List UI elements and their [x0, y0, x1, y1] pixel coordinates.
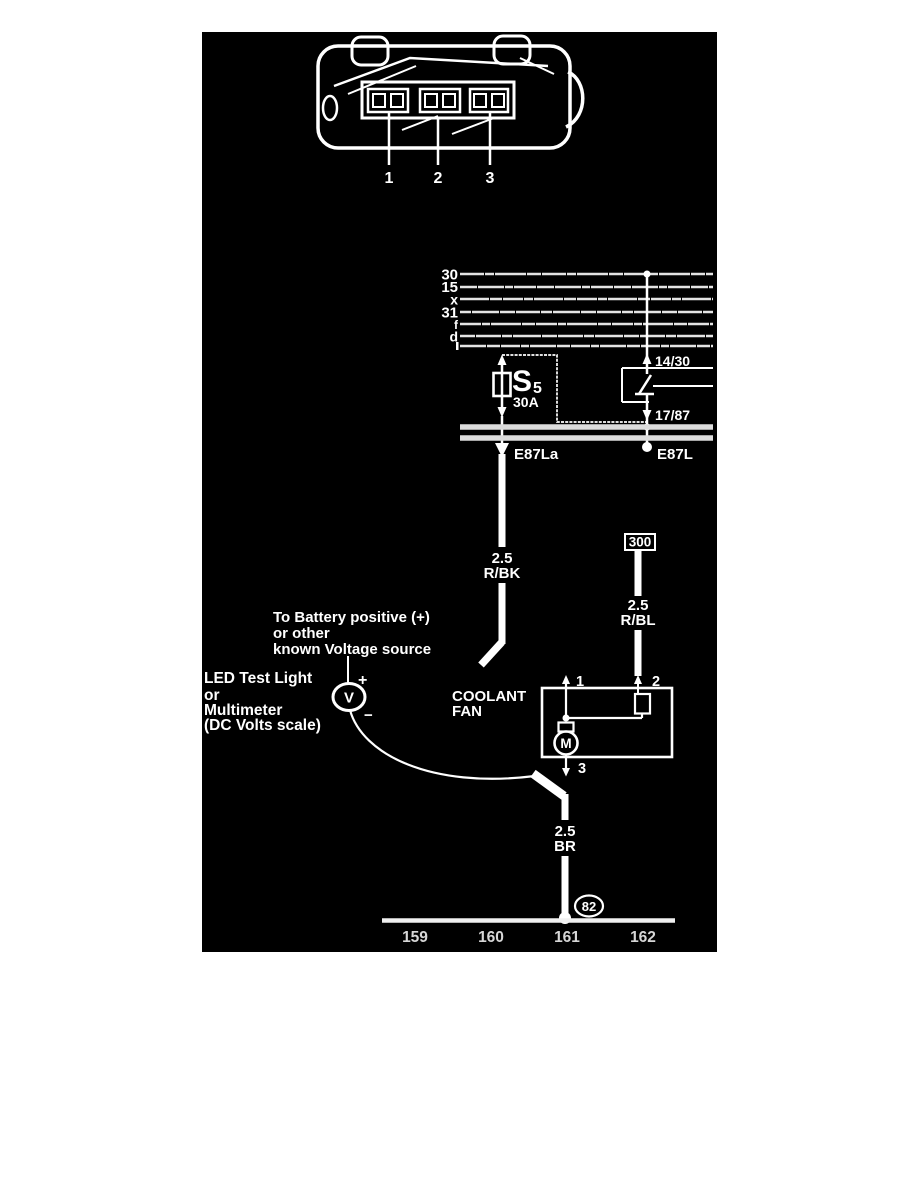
connector-pin3-label: 3	[486, 170, 495, 187]
fan-pin3-label: 3	[578, 761, 586, 777]
rbk-wire-upper	[499, 454, 506, 547]
meter-minus-sign: −	[364, 707, 373, 724]
track-label-161: 161	[554, 929, 580, 946]
fuse-arrow-down-icon	[498, 407, 507, 418]
relay-terminal-dot	[642, 442, 652, 452]
motor-brush-block	[559, 723, 574, 732]
terminal-window-3	[470, 89, 508, 112]
supply-wire-rbk: 2.5 R/BK	[481, 443, 520, 665]
fan-name-line2: FAN	[452, 703, 482, 720]
br-wire-color: BR	[554, 838, 576, 855]
meter-negative-lead	[350, 710, 535, 779]
terminal-blade	[391, 94, 403, 107]
panel-terminal-e87la-label: E87La	[514, 446, 559, 463]
track-label-162: 162	[630, 929, 656, 946]
meter-note-line4: (DC Volts scale)	[204, 717, 321, 734]
terminal-blade	[373, 94, 385, 107]
connector-pin1-label: 1	[385, 170, 394, 187]
panel-terminal-e87l-label: E87L	[657, 446, 693, 463]
ground-wire-br: 2.5 BR	[533, 774, 576, 925]
connector-left-oval	[323, 96, 337, 120]
rbk-wire-open-end	[481, 642, 502, 665]
rbk-wire-lower	[499, 583, 506, 644]
manual-page: 1 2 3 30 15 x 31 f d	[0, 0, 918, 1188]
fan-resistor-symbol	[635, 694, 650, 714]
track-label-159: 159	[402, 929, 428, 946]
battery-note-line3: known Voltage source	[273, 641, 431, 658]
fan-feed-wire-rbl: 300 2.5 R/BL	[621, 534, 656, 693]
rbk-wire-color: R/BK	[484, 565, 521, 582]
fuse-rating: 30A	[513, 394, 539, 410]
terminal-blade	[443, 94, 455, 107]
rbl-wire-upper	[635, 550, 642, 596]
inline-connector-300-label: 300	[629, 535, 652, 550]
rail-tick-mark	[456, 342, 459, 350]
terminal-blade	[474, 94, 486, 107]
rbl-wire-color: R/BL	[621, 612, 656, 629]
connector-illustration: 1 2 3	[318, 36, 583, 187]
terminal-blade	[425, 94, 437, 107]
motor-symbol: M	[560, 736, 571, 751]
br-wire-upper	[562, 794, 569, 820]
battery-note-line2: or other	[273, 625, 330, 642]
wiring-diagram: 1 2 3 30 15 x 31 f d	[202, 32, 717, 952]
relay-terminal-bottom-label: 17/87	[655, 407, 690, 423]
relay-arrow-up-icon	[643, 354, 652, 365]
rbl-wire-lower	[635, 630, 642, 676]
meter-plus-sign: +	[358, 672, 367, 689]
ground-id-label: 82	[582, 899, 596, 914]
power-rails: 30 15 x 31 f d	[441, 267, 713, 351]
wiring-diagram-canvas: 1 2 3 30 15 x 31 f d	[202, 32, 717, 952]
relay-terminal-top-label: 14/30	[655, 353, 690, 369]
track-label-160: 160	[478, 929, 504, 946]
connector-accent-line-2	[520, 58, 554, 74]
relay-switch-blade	[639, 375, 651, 394]
br-wire-bend	[533, 774, 564, 797]
voltmeter-symbol: V	[344, 690, 354, 707]
ground-rail-section: 82 159 160 161 162	[382, 896, 675, 947]
connector-lock-tab-left	[352, 37, 388, 65]
battery-note-line1: To Battery positive (+)	[273, 609, 430, 626]
br-wire-lower	[562, 856, 569, 918]
fan-pin3-arrow-down-icon	[562, 768, 570, 777]
meter-note-line1: LED Test Light	[204, 670, 312, 687]
connector-accent-line-4	[452, 118, 494, 134]
relay-arrow-down-icon	[643, 410, 652, 421]
connector-pin2-label: 2	[434, 170, 443, 187]
terminal-blade	[492, 94, 504, 107]
